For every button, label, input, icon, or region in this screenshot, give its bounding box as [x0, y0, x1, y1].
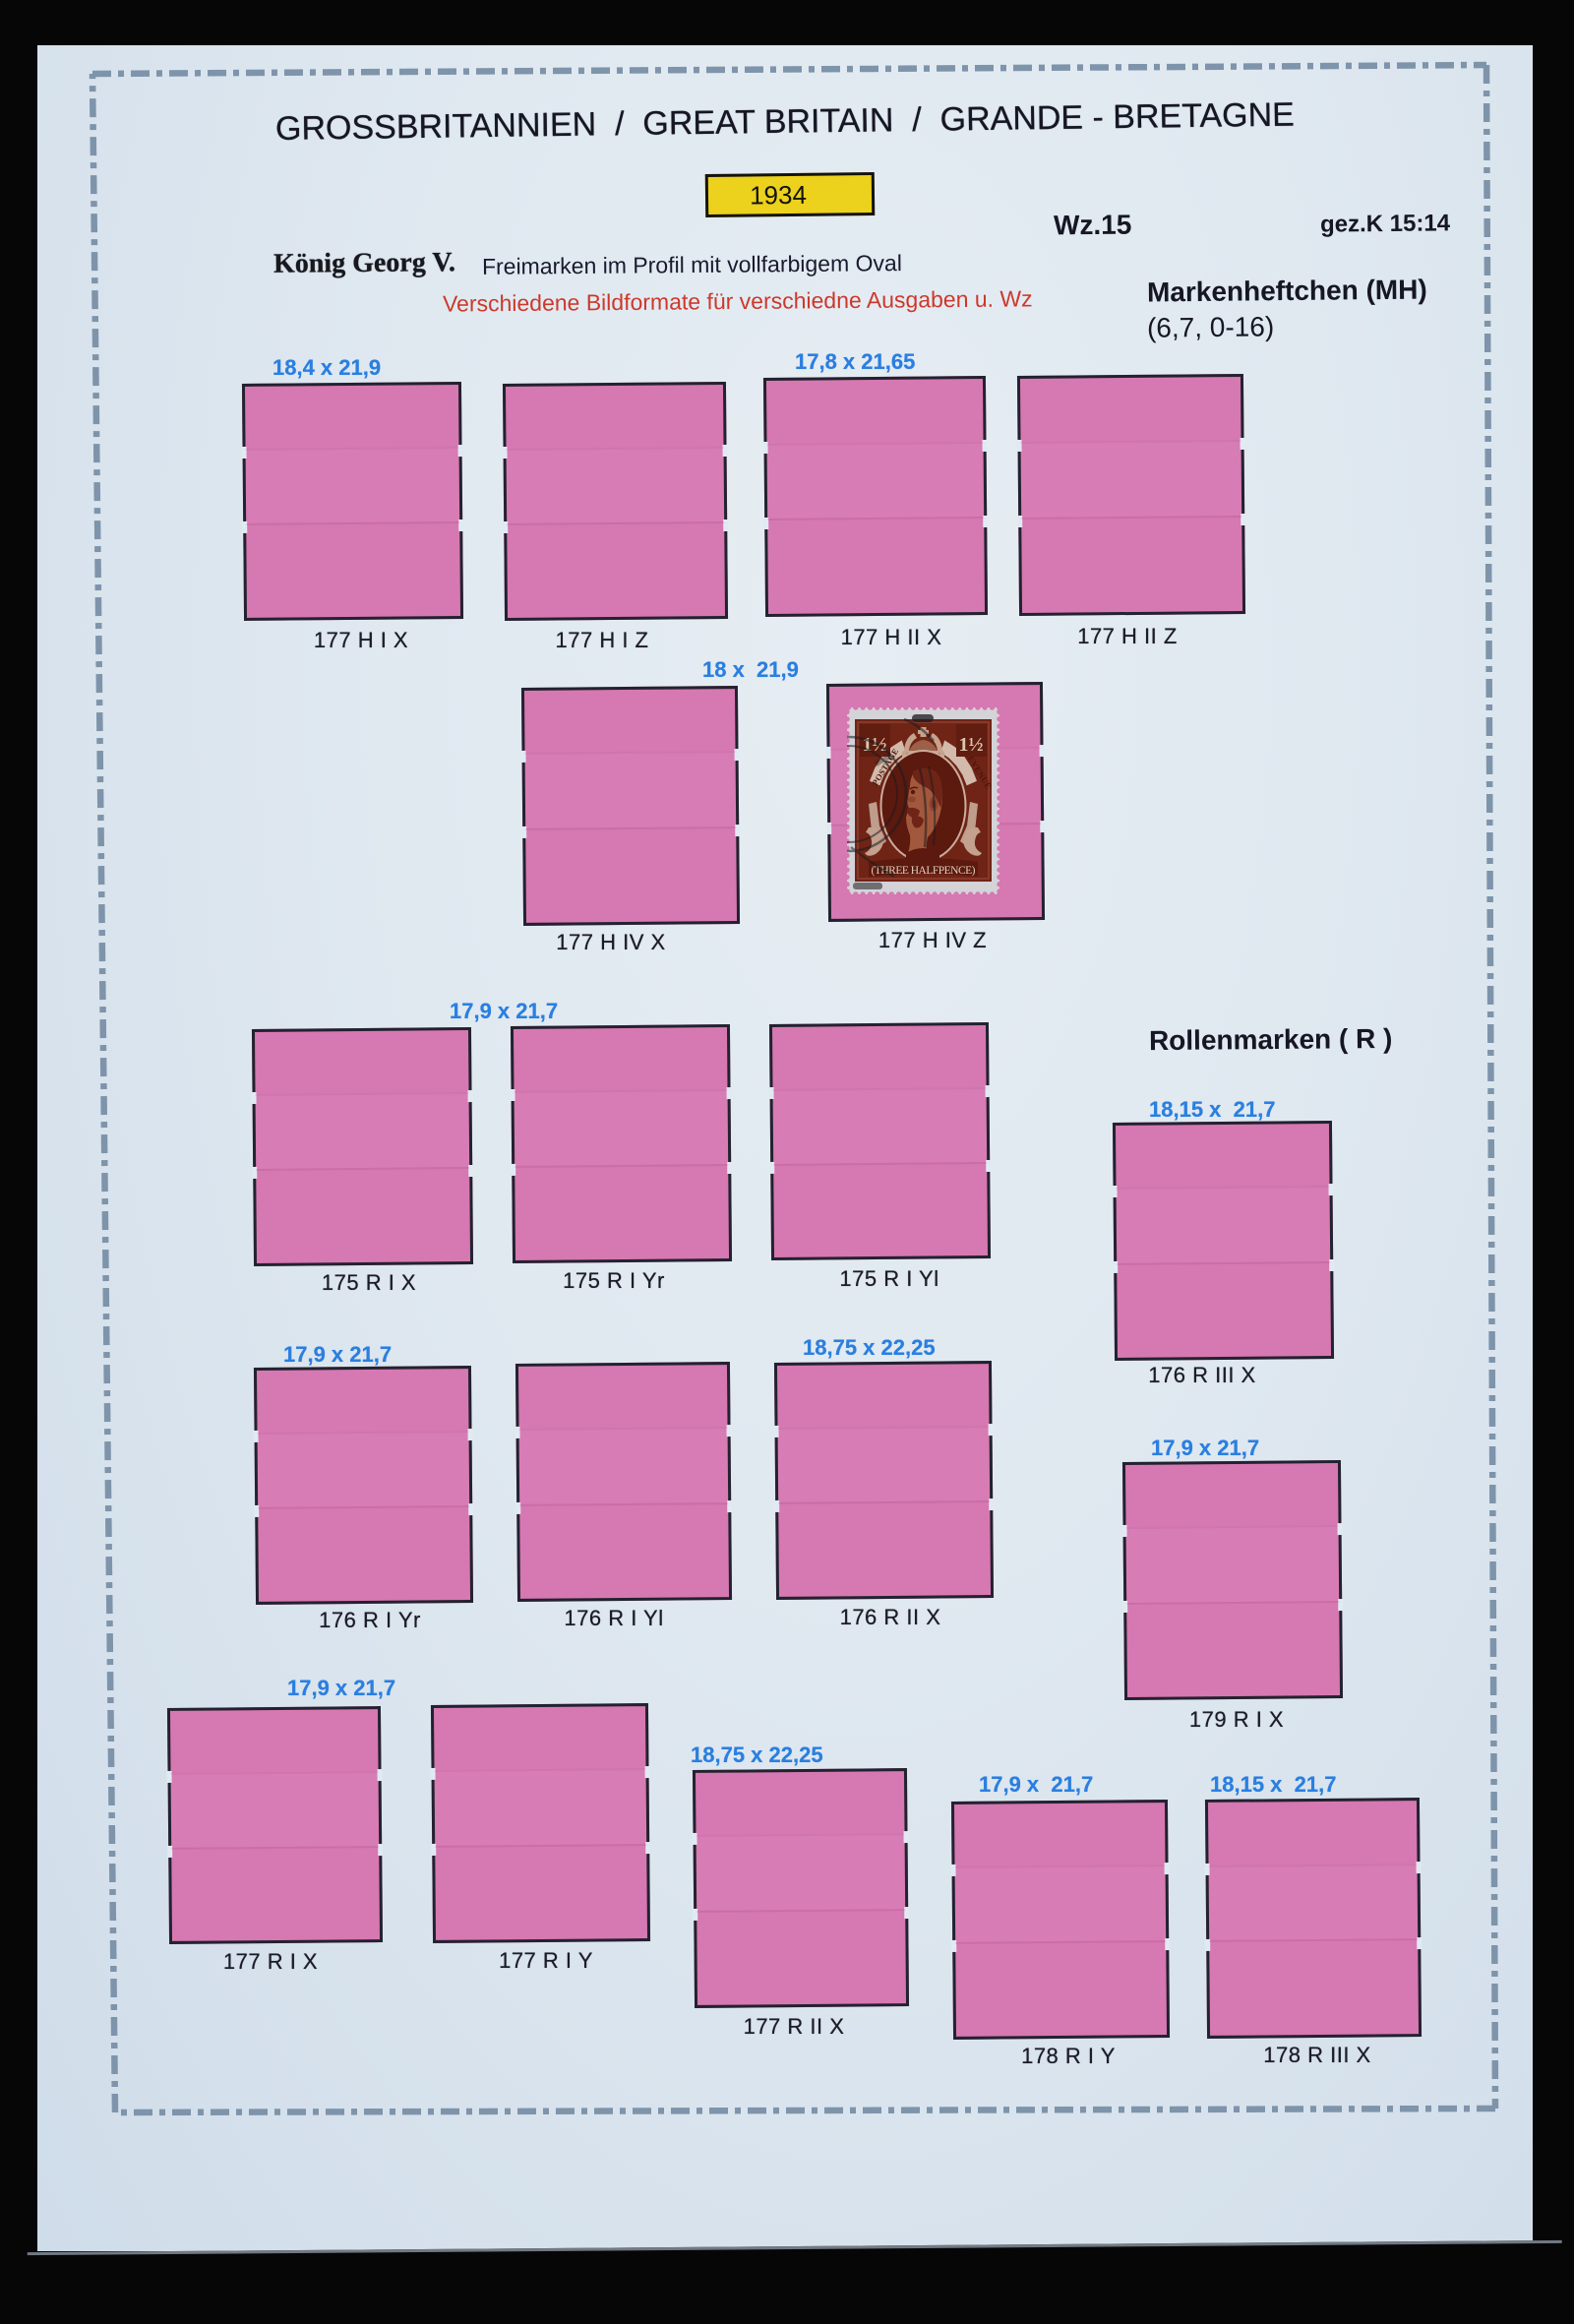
svg-text:1½: 1½ — [959, 734, 984, 756]
svg-text:(THREE HALFPENCE): (THREE HALFPENCE) — [872, 865, 976, 877]
